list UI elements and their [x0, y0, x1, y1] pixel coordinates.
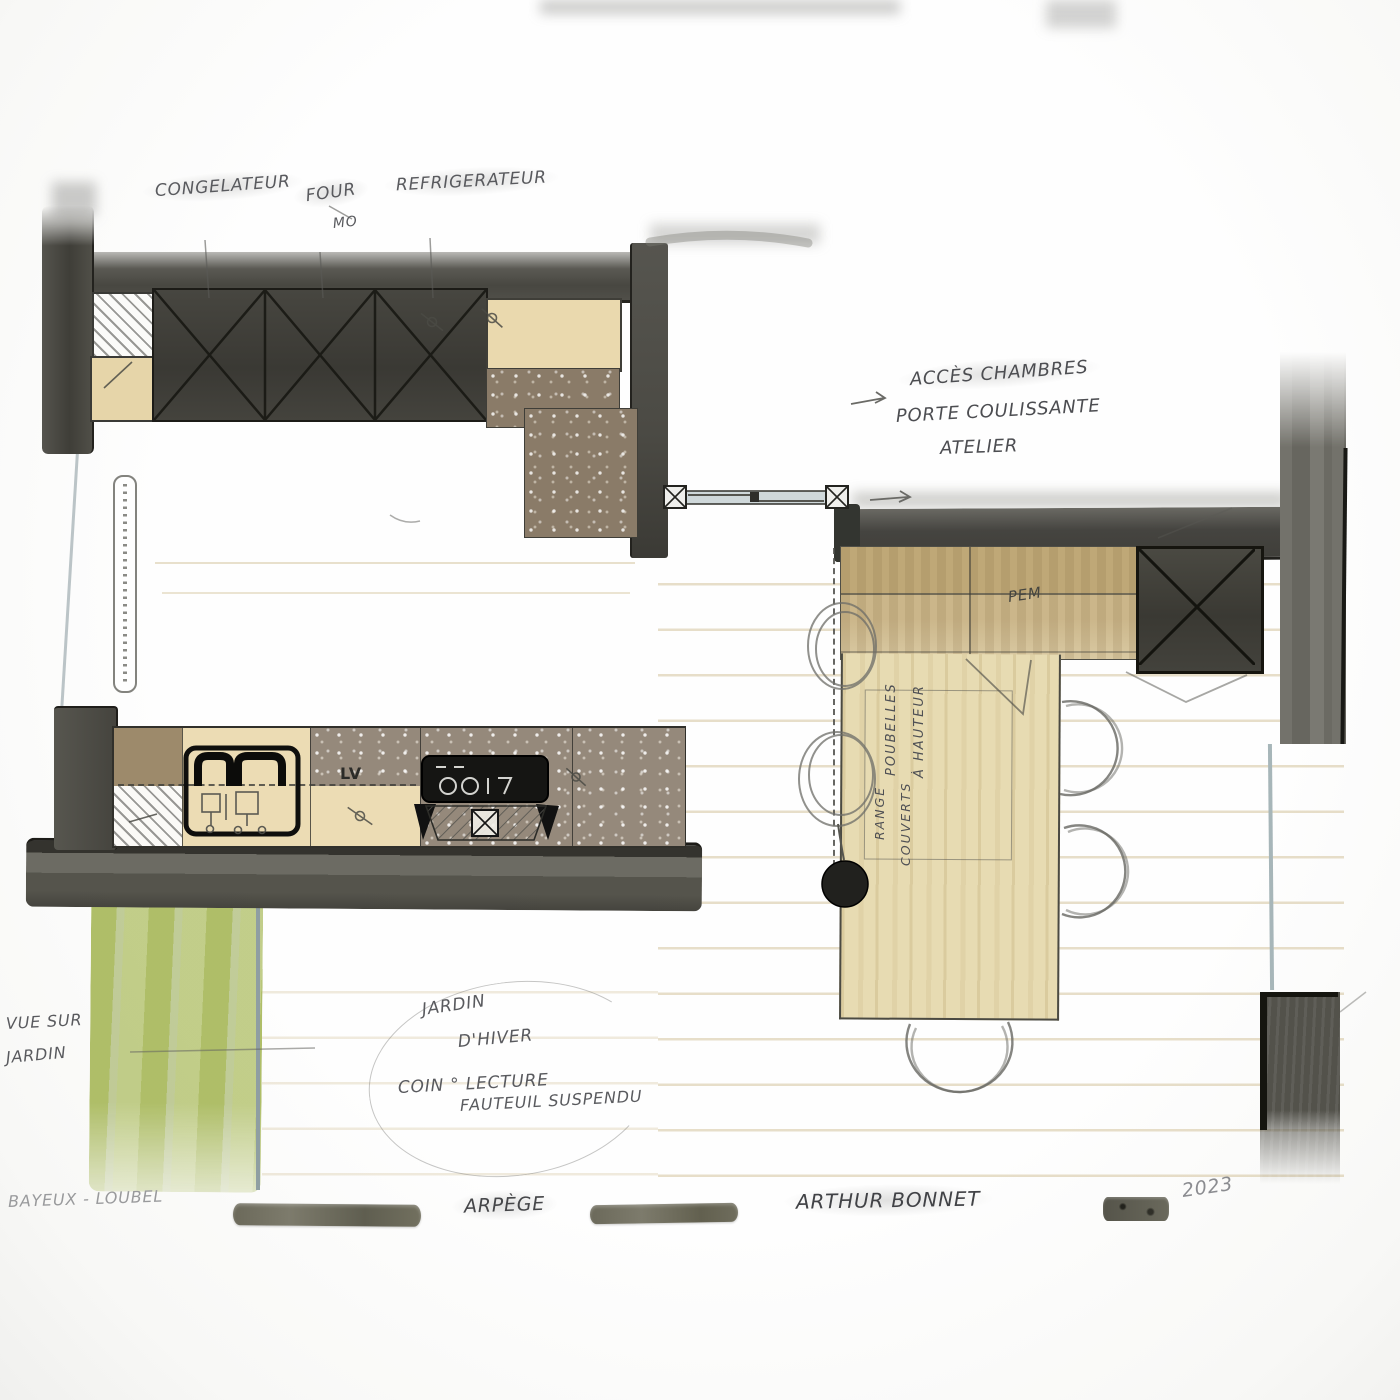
label-vue-sur: VUE SUR [6, 1010, 83, 1033]
stool-circles [799, 603, 876, 826]
pencil-diagonal [1158, 508, 1232, 538]
pendant-cord [838, 824, 844, 860]
floor-plan-sketch: CONGELATEUR FOUR MO REFRIGERATEUR ACCÈS … [0, 0, 1400, 1400]
handle-symbols [104, 305, 588, 828]
leader-lines [205, 206, 433, 298]
pencil-diagonal [1340, 992, 1366, 1012]
wall-fade-arc [650, 235, 808, 243]
label-micro-ondes: MO [332, 213, 358, 231]
chair-arcs [906, 701, 1128, 1092]
label-atelier: ATELIER [940, 435, 1019, 459]
label-couverts: COUVERTS [898, 744, 913, 866]
label-lave-vaisselle: LV [340, 764, 362, 783]
label-range: RANGE [872, 752, 887, 840]
garden-pencil-line [130, 1048, 315, 1052]
cabinet-door-swing [1126, 672, 1247, 702]
label-poubelles: POUBELLES [884, 608, 899, 776]
label-a-hauteur: À HAUTEUR [912, 616, 927, 778]
table-notch-line [966, 659, 1031, 714]
pencil-squiggle [390, 515, 420, 522]
pendant-dot [822, 861, 868, 907]
